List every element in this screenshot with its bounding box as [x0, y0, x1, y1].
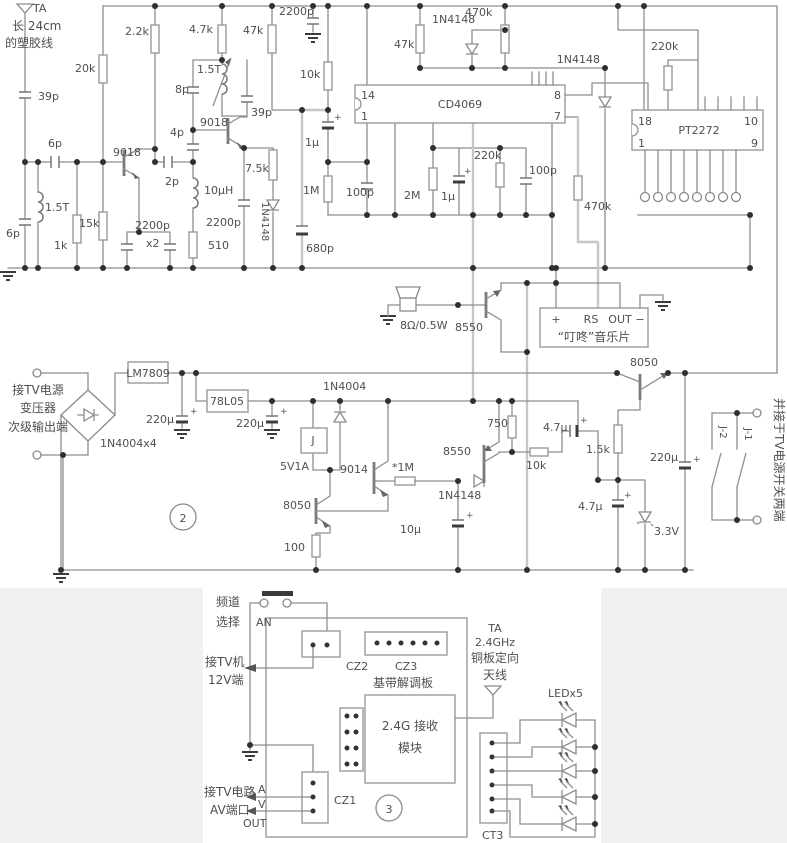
- label-u1: LM7809: [126, 367, 170, 380]
- resistor-750: [508, 416, 516, 438]
- label-r47kb: 47k: [394, 38, 415, 51]
- svg-text:+: +: [580, 416, 588, 426]
- label-ct3: CT3: [482, 829, 503, 842]
- label-at4: 天线: [483, 668, 507, 682]
- svg-text:+: +: [693, 455, 701, 465]
- label-mcrs: RS: [584, 313, 599, 326]
- label-r1m: 1M: [303, 184, 320, 197]
- label-r1k5: 1.5k: [586, 443, 610, 456]
- resistor-2m: [429, 168, 437, 190]
- resistor-220k-a: [496, 163, 504, 187]
- label-at2: 2.4GHz: [475, 636, 515, 649]
- label-c220uc: 220µ: [650, 451, 678, 464]
- resistor-510: [189, 232, 197, 258]
- label-ic1: CD4069: [438, 98, 482, 111]
- label-d4148c: 1N4148: [438, 489, 481, 502]
- output-terminal-1: [753, 409, 761, 417]
- resistor-47k-b: [416, 25, 424, 53]
- label-bridge: 1N4004x4: [100, 437, 157, 450]
- label-relay: J: [310, 434, 314, 447]
- label-r2k2: 2.2k: [125, 25, 149, 38]
- label-num2: 2: [180, 512, 187, 525]
- label-r10kb: 10k: [526, 459, 547, 472]
- svg-text:+: +: [334, 113, 342, 123]
- label-ch1: 频道: [216, 595, 240, 609]
- label-c39pa: 39p: [38, 90, 59, 103]
- label-r220kb: 220k: [651, 40, 679, 53]
- resistor-2_2k: [151, 25, 159, 53]
- label-r2m: 2M: [404, 189, 421, 202]
- label-r7k5: 7.5k: [245, 162, 269, 175]
- label-r510: 510: [208, 239, 229, 252]
- label-r220ka: 220k: [474, 149, 502, 162]
- connector-cz2: [302, 631, 340, 657]
- label-led: LEDx5: [548, 687, 583, 700]
- label-mcname: “叮咚”音乐片: [558, 329, 630, 344]
- svg-text:+: +: [190, 407, 198, 417]
- label-av1: 接TV电路: [204, 784, 256, 799]
- label-c1ub: 1µ: [441, 190, 455, 203]
- resistor-15k: [99, 212, 107, 240]
- label-mod1: 2.4G 接收: [382, 718, 438, 733]
- label-q9018b: 9018: [200, 116, 228, 129]
- label-q9014: 9014: [340, 463, 368, 476]
- label-r750: 750: [487, 417, 508, 430]
- label-p1b: 1: [638, 137, 645, 150]
- label-r47ka: 47k: [243, 24, 264, 37]
- resistor-10k-b: [530, 448, 548, 456]
- resistor-470k-b: [574, 176, 582, 200]
- label-at1: TA: [487, 622, 502, 635]
- label-l15tb: 1.5T: [197, 63, 221, 76]
- label-mod2: 模块: [398, 741, 422, 755]
- resistor-10k-a: [324, 62, 332, 90]
- label-c4u7b: 4.7µ: [578, 500, 603, 513]
- label-p9: 9: [751, 137, 758, 150]
- label-out: OUT: [243, 817, 267, 830]
- resistor-1m: [324, 176, 332, 202]
- label-cz2: CZ2: [346, 660, 368, 673]
- label-c6pa: 6p: [48, 137, 62, 150]
- label-c6pb: 6p: [6, 227, 20, 240]
- label-c4p: 4p: [170, 126, 184, 139]
- label-r10ka: 10k: [300, 68, 321, 81]
- label-q8550a: 8550: [455, 321, 483, 334]
- label-d4004: 1N4004: [323, 380, 366, 393]
- label-p18: 18: [638, 115, 652, 128]
- label-c4u7a: 4.7µ: [543, 421, 568, 434]
- label-c39pb: 39p: [251, 106, 272, 119]
- module-2_4g: [365, 695, 455, 783]
- connector-8pin: [340, 708, 363, 771]
- label-r470kb: 470k: [584, 200, 612, 213]
- label-q8550b: 8550: [443, 445, 471, 458]
- label-a: A: [258, 783, 266, 796]
- label-d4148d: 1N4148: [259, 202, 270, 241]
- label-ta3: 的塑胶线: [5, 35, 53, 50]
- label-ch2: 选择: [216, 615, 240, 629]
- label-ic2: PT2272: [678, 124, 719, 137]
- label-c100pa: 100p: [346, 186, 374, 199]
- label-p10: 10: [744, 115, 758, 128]
- label-c2200pc: 2200p: [279, 5, 314, 18]
- resistor-7_5k: [269, 150, 277, 180]
- label-c220ub: 220µ: [236, 417, 264, 430]
- label-q9018a: 9018: [113, 146, 141, 159]
- input-terminal-1: [33, 369, 41, 377]
- label-r100: 100: [284, 541, 305, 554]
- label-in2: 变压器: [20, 400, 56, 415]
- svg-text:+: +: [464, 167, 472, 177]
- output-terminal-2: [753, 516, 761, 524]
- label-r15k: 15k: [79, 217, 100, 230]
- label-j2: J-2: [717, 425, 728, 439]
- label-av2: AV端口: [210, 803, 250, 817]
- label-in1: 接TV电源: [12, 382, 64, 397]
- label-c2200pb: 2200p: [206, 216, 241, 229]
- svg-text:+: +: [624, 491, 632, 501]
- resistor-47k-a: [268, 25, 276, 53]
- resistor-100: [312, 535, 320, 557]
- label-ta: TA: [32, 2, 47, 15]
- label-at3: 铜板定向: [471, 650, 519, 665]
- resistor-20k: [99, 55, 107, 83]
- label-tv1: 接TV机: [205, 654, 245, 669]
- label-j1: J-1: [742, 427, 753, 441]
- label-cz3: CZ3: [395, 660, 417, 673]
- speaker-icon: [400, 298, 416, 311]
- label-p7: 7: [554, 110, 561, 123]
- label-tv2: 12V端: [208, 673, 243, 687]
- label-c1ua: 1µ: [305, 136, 319, 149]
- label-relayspec: 5V1A: [280, 460, 310, 473]
- label-r1ms: *1M: [392, 461, 414, 474]
- input-terminal-2: [33, 451, 41, 459]
- label-mcm: −: [635, 313, 644, 326]
- svg-text:+: +: [280, 407, 288, 417]
- label-c2p: 2p: [165, 175, 179, 188]
- pushbutton-an: [262, 591, 293, 596]
- svg-text:+: +: [466, 511, 474, 521]
- label-l15ta: 1.5T: [45, 201, 69, 214]
- label-d4148b: 1N4148: [557, 53, 600, 66]
- label-c100pb: 100p: [529, 164, 557, 177]
- label-in3: 次级输出端: [8, 419, 68, 434]
- label-note: 并接于TV电源开关两端: [772, 398, 787, 522]
- label-c2200pa: 2200p: [135, 219, 170, 232]
- label-v: V: [258, 798, 266, 811]
- label-cz1: CZ1: [334, 794, 356, 807]
- resistor-4_7k: [218, 25, 226, 53]
- resistor-star-1m: [395, 477, 415, 485]
- label-p14: 14: [361, 89, 375, 102]
- resistor-1_5k: [614, 425, 622, 453]
- label-x2: x2: [146, 237, 160, 250]
- label-board: 基带解调板: [373, 676, 433, 690]
- label-mcp: +: [551, 313, 560, 326]
- label-ta2: 长 24cm: [12, 19, 61, 33]
- label-spk: 8Ω/0.5W: [400, 319, 448, 332]
- label-q8050a: 8050: [283, 499, 311, 512]
- label-p1: 1: [361, 110, 368, 123]
- label-r20k: 20k: [75, 62, 96, 75]
- label-r470ka: 470k: [465, 6, 493, 19]
- schematic-page: TA 长 24cm 的塑胶线 39p 6p 1.5T 6p 1k 15k 901…: [0, 0, 787, 843]
- label-c8p: 8p: [175, 83, 189, 96]
- label-c220ua: 220µ: [146, 413, 174, 426]
- label-u2: 78L05: [210, 395, 244, 408]
- resistor-220k-b: [664, 66, 672, 90]
- label-an: AN: [256, 616, 272, 629]
- label-c10u: 10µ: [400, 523, 421, 536]
- label-num3: 3: [386, 803, 393, 816]
- label-c680p: 680p: [306, 242, 334, 255]
- label-r1k: 1k: [54, 239, 68, 252]
- label-q8050b: 8050: [630, 356, 658, 369]
- label-dz: 3.3V: [654, 525, 679, 538]
- label-p8: 8: [554, 89, 561, 102]
- circuit-schematic: TA 长 24cm 的塑胶线 39p 6p 1.5T 6p 1k 15k 901…: [0, 0, 787, 843]
- label-r4k7: 4.7k: [189, 23, 213, 36]
- label-mcout: OUT: [608, 313, 632, 326]
- label-l10uh: 10µH: [204, 184, 233, 197]
